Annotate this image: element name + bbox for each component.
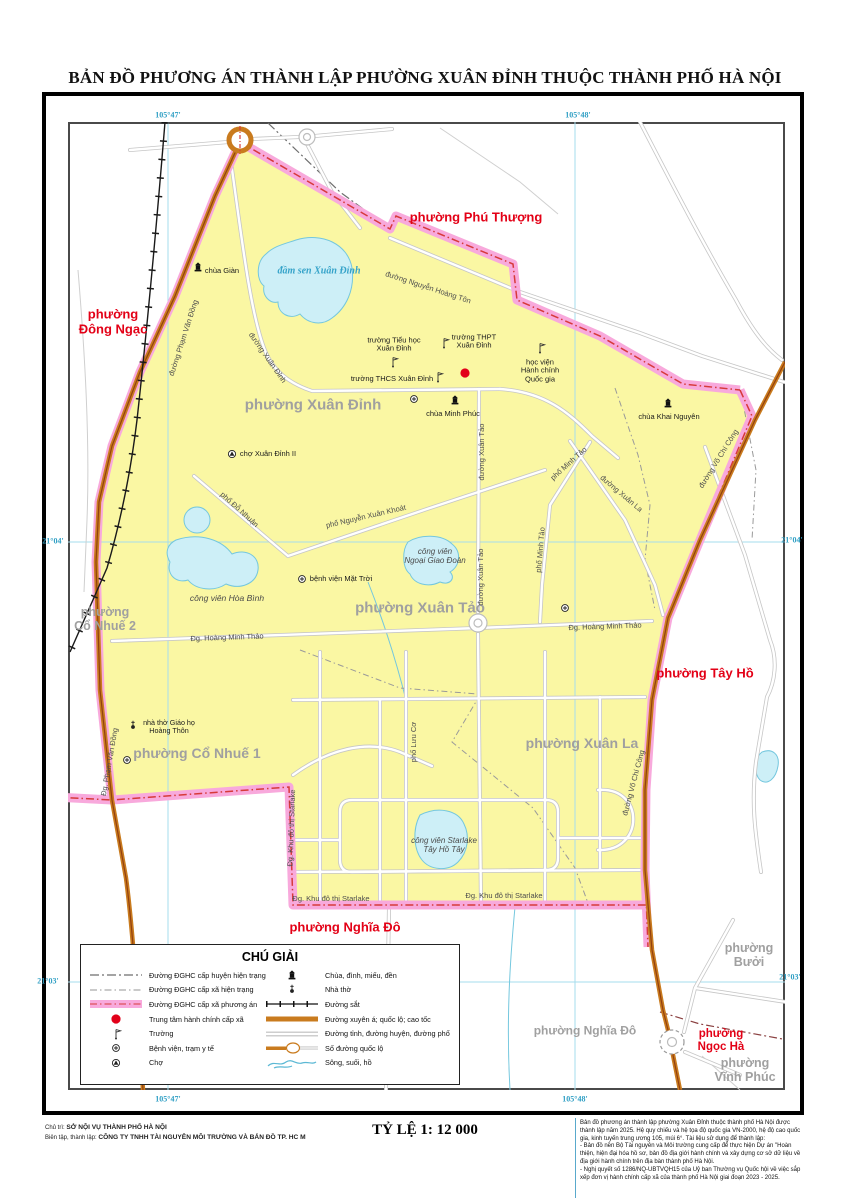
legend-row: Trường <box>87 1026 263 1041</box>
railway-icon <box>263 998 321 1010</box>
dash-dot-line-dark-icon <box>87 969 145 981</box>
hospital-icon <box>411 396 418 403</box>
legend-row: Đường sắt <box>263 997 453 1012</box>
legend-row: Đường ĐGHC cấp huyện hiện trạng <box>87 968 263 983</box>
map-sheet: BẢN ĐỒ PHƯƠNG ÁN THÀNH LẬP PHƯỜNG XUÂN Đ… <box>0 0 850 1202</box>
orange-band-icon <box>263 1013 321 1025</box>
legend-row: Trung tâm hành chính cấp xã <box>87 1012 263 1027</box>
school-flag-icon <box>87 1028 145 1040</box>
map-scale: TỶ LỆ 1: 12 000 <box>355 1122 495 1139</box>
dash-dot-line-light-icon <box>87 984 145 996</box>
note-paragraph: - Nghị quyết số 1286/NQ-UBTVQH15 của Uỷ … <box>580 1167 806 1183</box>
legend-row: Nhà thờ <box>263 983 453 998</box>
hospital-icon <box>124 757 131 764</box>
market-icon <box>87 1057 145 1069</box>
legend-row: Chùa, đình, miếu, đền <box>263 968 453 983</box>
legend-row: Đường xuyên á; quốc lộ; cao tốc <box>263 1012 453 1027</box>
legend-row: Chợ <box>87 1056 263 1071</box>
roundabout-south <box>660 1030 684 1054</box>
legend-row: Sông, suối, hồ <box>263 1056 453 1071</box>
roundabout-small-north <box>299 129 315 145</box>
legend: CHÚ GIẢI Đường ĐGHC cấp huyện hiện trạng… <box>80 944 460 1085</box>
pink-band-icon <box>87 998 145 1010</box>
note-paragraph: Bản đồ phương án thành lập phường Xuân Đ… <box>580 1120 806 1143</box>
legend-row: Đường ĐGHC cấp xã hiện trạng <box>87 983 263 998</box>
legend-row: Số đường quốc lộ <box>263 1041 453 1056</box>
hospital-icon <box>87 1042 145 1054</box>
note-paragraph: - Bản đồ nền Bộ Tài nguyên và Môi trường… <box>580 1143 806 1166</box>
pagoda-icon <box>263 969 321 982</box>
church-icon <box>263 983 321 996</box>
legend-title: CHÚ GIẢI <box>81 950 459 964</box>
credits: Chủ trì: SỞ NỘI VỤ THÀNH PHỐ HÀ NỘI Biên… <box>45 1123 306 1143</box>
roundabout-north <box>229 126 251 154</box>
credit-line-1: Chủ trì: SỞ NỘI VỤ THÀNH PHỐ HÀ NỘI <box>45 1123 306 1133</box>
hospital-icon <box>562 605 569 612</box>
roundabout-xuan-tao <box>469 614 487 632</box>
river-icon <box>263 1057 321 1069</box>
credit-line-2: Biên tập, thành lập: CÔNG TY TNHH TÀI NG… <box>45 1133 306 1143</box>
hospital-icon <box>299 576 306 583</box>
red-dot-icon <box>87 1013 145 1025</box>
map-notes: Bản đồ phương án thành lập phường Xuân Đ… <box>580 1120 806 1182</box>
legend-row: Đường ĐGHC cấp xã phương án <box>87 997 263 1012</box>
market-icon <box>228 450 235 457</box>
route-number-icon <box>263 1042 321 1054</box>
double-line-icon <box>263 1028 321 1040</box>
admin-center-dot <box>460 368 469 377</box>
map-title: BẢN ĐỒ PHƯƠNG ÁN THÀNH LẬP PHƯỜNG XUÂN Đ… <box>0 68 850 88</box>
notes-separator <box>575 1118 576 1198</box>
legend-row: Bệnh viện, trạm y tế <box>87 1041 263 1056</box>
legend-row: Đường tỉnh, đường huyện, đường phố <box>263 1026 453 1041</box>
